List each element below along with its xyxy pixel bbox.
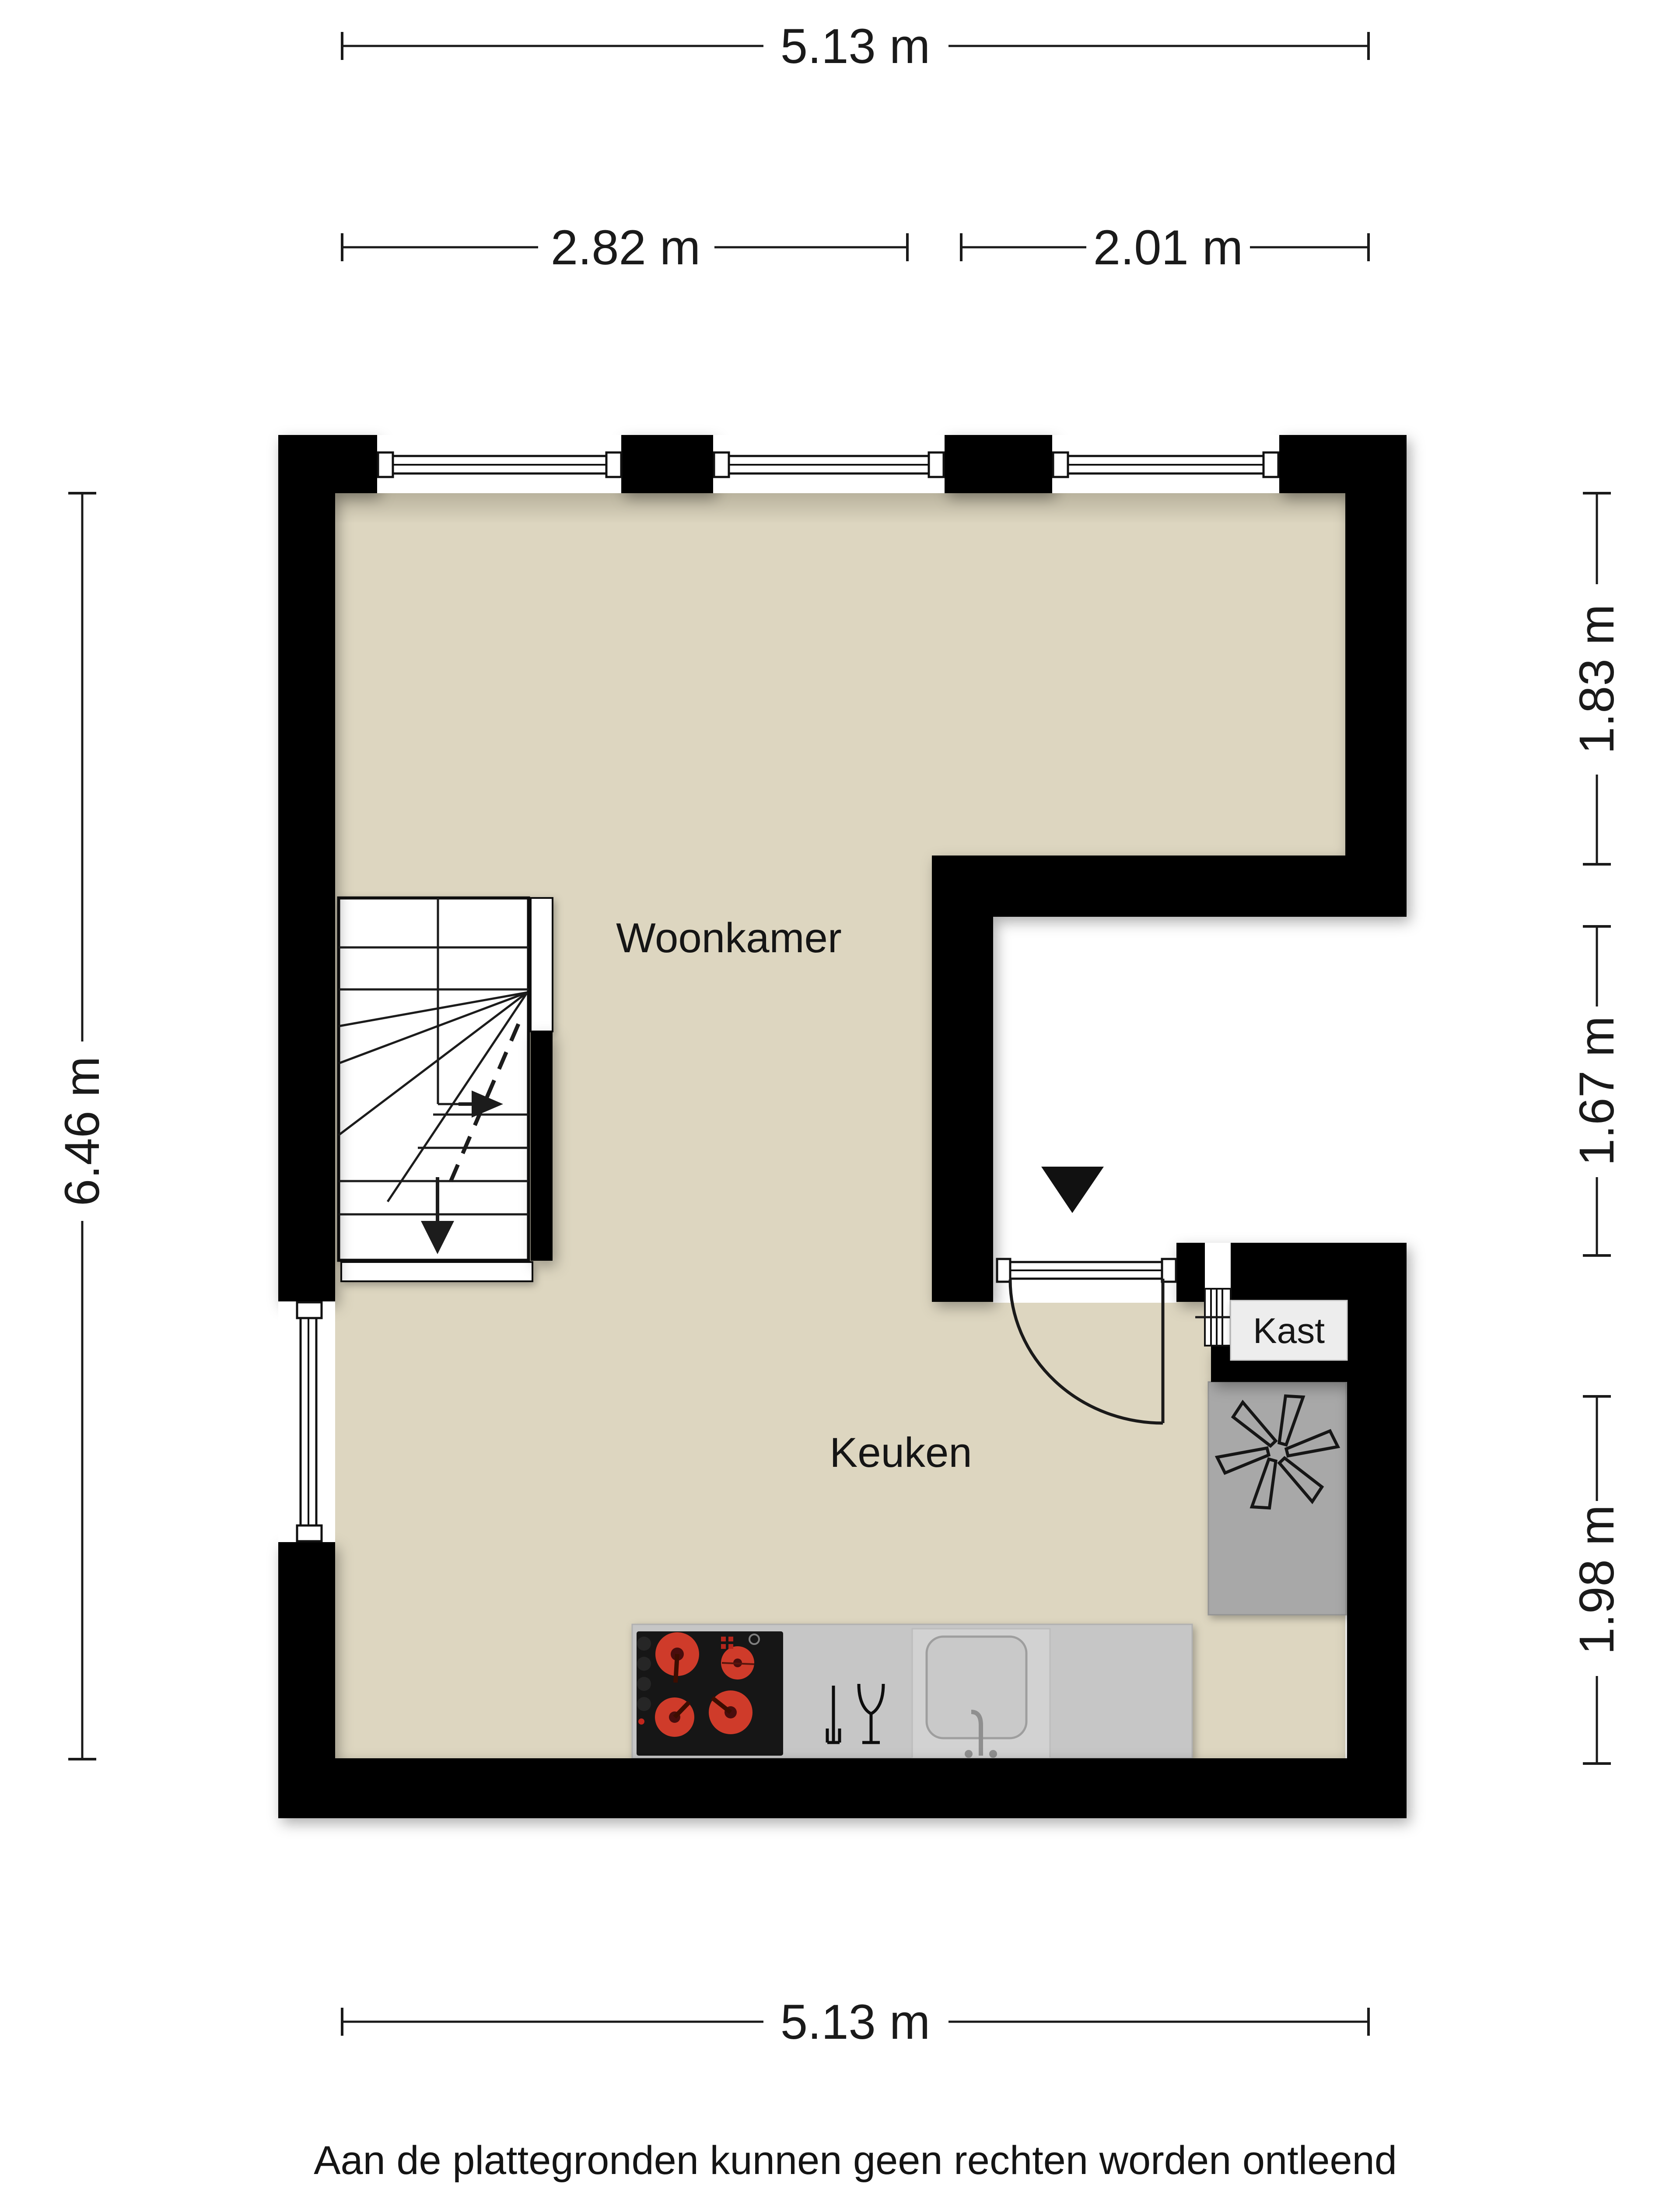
dimension-label: 1.67 m [1569, 1016, 1624, 1166]
dimension-label: 6.46 m [55, 1056, 109, 1206]
window-cap [606, 452, 621, 477]
entrance-recess-floor [993, 917, 1407, 1249]
window-cap [297, 1525, 322, 1541]
window-icon [278, 1301, 335, 1542]
wall-recess-left [932, 856, 993, 1302]
dimension-label: 5.13 m [780, 1995, 930, 2049]
cooktop-dot [721, 1644, 726, 1649]
kitchen-counter [632, 1624, 1192, 1758]
stair-outline [339, 898, 528, 1260]
living-room-label: Woonkamer [616, 915, 842, 961]
cooktop-knob [637, 1657, 651, 1671]
door-jamb [1162, 1259, 1176, 1282]
dimension-label: 1.98 m [1569, 1505, 1624, 1655]
window-icon [1052, 435, 1279, 493]
dimension-left-total: 6.46 m [55, 493, 109, 1759]
cooktop-dot [721, 1637, 726, 1641]
dimension-label: 1.83 m [1569, 604, 1624, 754]
window-cap [714, 452, 729, 477]
cooktop-indicator [638, 1718, 644, 1725]
closet: Kast [1231, 1301, 1347, 1360]
kitchen-label: Keuken [829, 1429, 972, 1476]
floor-plan-page: Kast Woonkamer Keuken 5.13 m 2.82 m 2.01… [0, 0, 1680, 2188]
unit-body [1208, 1382, 1346, 1615]
cooktop-dot [728, 1644, 733, 1649]
wall-top-pier [945, 435, 1052, 493]
dimension-label: 2.82 m [551, 220, 700, 275]
cooktop-dot [728, 1637, 733, 1641]
window-cap [929, 452, 944, 477]
burner-mark [675, 1654, 677, 1683]
ventilation-unit [1208, 1382, 1346, 1615]
wall-right-lower [1347, 1243, 1407, 1818]
dimension-label: 5.13 m [780, 19, 930, 74]
wall-right-upper [1345, 435, 1407, 917]
window-cap [378, 452, 393, 477]
wall-left-upper [278, 435, 335, 1301]
window-icon [713, 435, 945, 493]
floor-plan-drawing: Kast Woonkamer Keuken 5.13 m 2.82 m 2.01… [0, 0, 1680, 2188]
cooktop-knob [637, 1637, 651, 1651]
wall-bottom [278, 1758, 1407, 1818]
stair-threshold [341, 1262, 532, 1281]
closet-label: Kast [1253, 1311, 1325, 1351]
wall-top-pier [621, 435, 713, 493]
wall-recess-top [932, 856, 1407, 917]
wall-stair-stub [531, 1031, 553, 1261]
sink-basin [927, 1637, 1026, 1738]
wall-top-pier [278, 435, 377, 493]
cooktop-icon [637, 1631, 783, 1756]
dimension-bottom-total: 5.13 m [342, 1995, 1368, 2049]
window-cap [1263, 452, 1278, 477]
staircase [339, 898, 553, 1281]
window-cap [1053, 452, 1068, 477]
door-jamb [997, 1259, 1010, 1282]
dimension-right-bottom: 1.98 m [1569, 1396, 1624, 1764]
floor-top-shade [335, 493, 1345, 524]
faucet-handle [989, 1750, 997, 1758]
sink-icon [912, 1629, 1050, 1758]
cooktop-knob [637, 1677, 651, 1691]
dimension-right-top: 1.83 m [1569, 493, 1624, 864]
dimension-top-left: 2.82 m [342, 220, 907, 275]
dimension-top-right: 2.01 m [961, 220, 1368, 275]
dimension-right-middle: 1.67 m [1569, 926, 1624, 1255]
window-icon [377, 435, 621, 493]
dimension-top-total: 5.13 m [342, 19, 1368, 74]
cooktop-knob [637, 1697, 651, 1711]
stair-rail [531, 898, 553, 1031]
dimension-label: 2.01 m [1093, 220, 1243, 275]
faucet-handle [965, 1750, 973, 1758]
footer-disclaimer: Aan de plattegronden kunnen geen rechten… [314, 2138, 1397, 2183]
window-cap [297, 1302, 322, 1318]
